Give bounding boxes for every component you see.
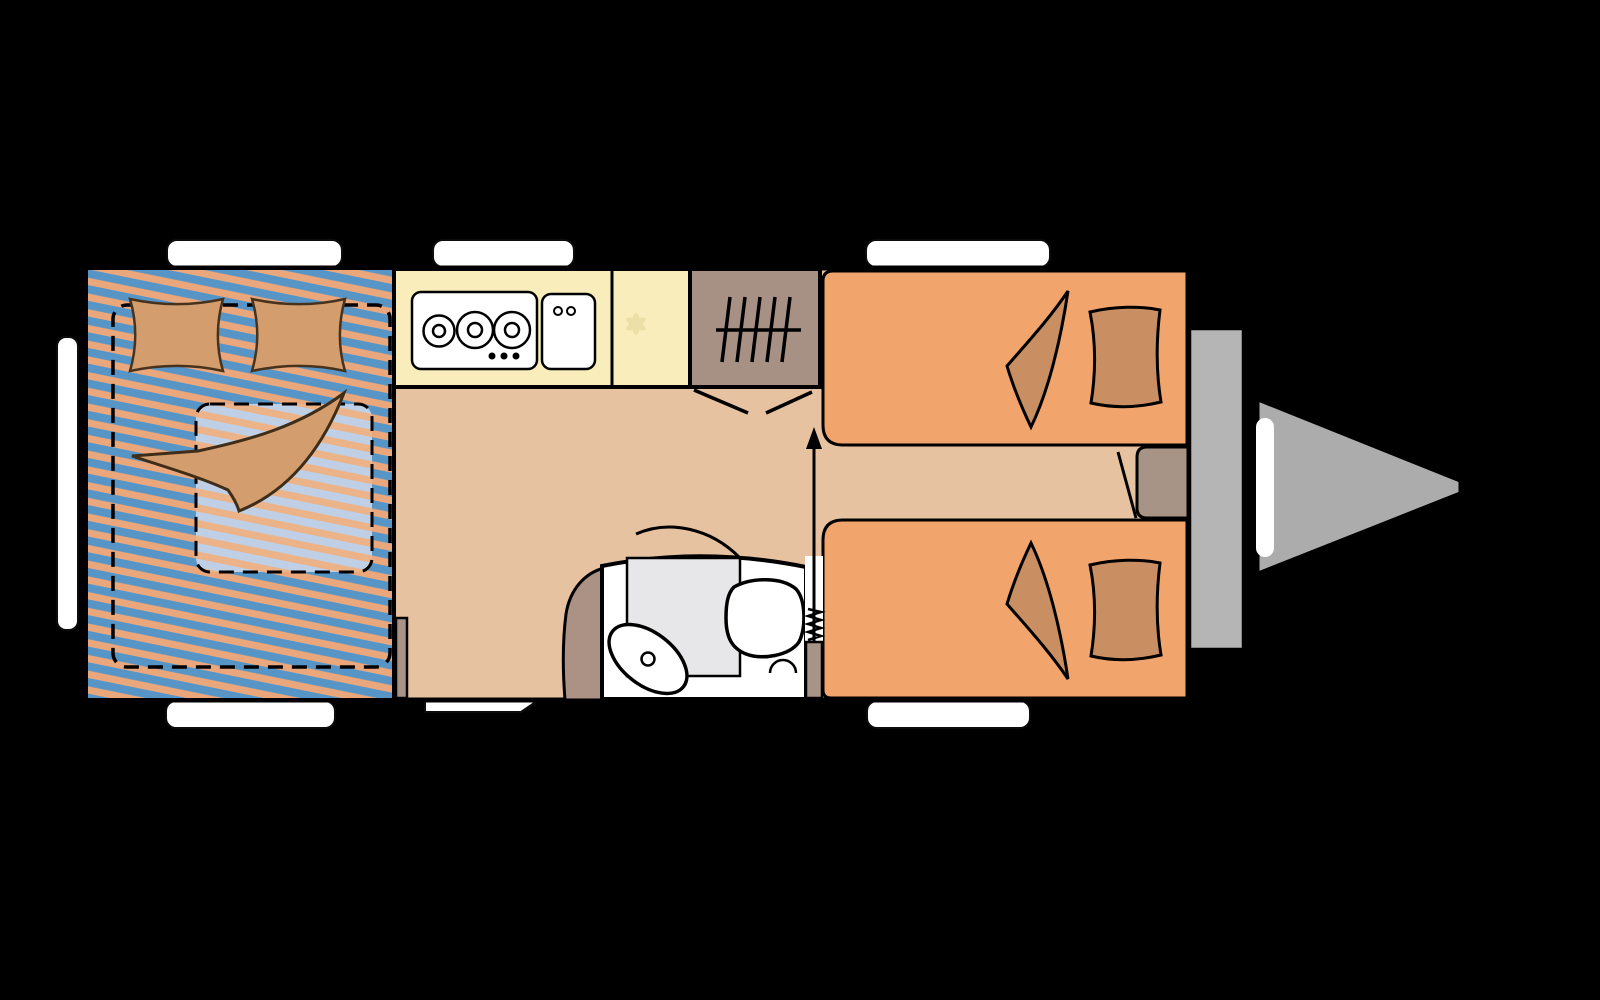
kitchen-sink bbox=[542, 294, 595, 369]
sink-tap-hole-1 bbox=[554, 307, 562, 315]
hob-knob-1 bbox=[489, 353, 496, 360]
side-table bbox=[1137, 447, 1188, 518]
caravan-floorplan bbox=[0, 0, 1600, 1000]
bed-step bbox=[396, 618, 407, 698]
window-bottom-1 bbox=[166, 701, 335, 728]
window-bottom-2 bbox=[867, 701, 1030, 728]
sink-tap-hole-2 bbox=[567, 307, 575, 315]
seat-cushion-top-square bbox=[1090, 307, 1161, 406]
window-top-1 bbox=[167, 240, 342, 267]
hob-knob-3 bbox=[513, 353, 520, 360]
rear-bumper bbox=[1190, 329, 1243, 649]
drawbar-hitch bbox=[1258, 400, 1460, 573]
entrance-door-leaf bbox=[806, 642, 822, 698]
hob-knob-2 bbox=[501, 353, 508, 360]
drawbar-mount bbox=[1243, 398, 1258, 575]
washbasin-drain bbox=[642, 653, 655, 666]
bed-pillow-left bbox=[130, 299, 223, 371]
seat-cushion-bottom-square bbox=[1090, 560, 1161, 659]
window-top-2 bbox=[433, 240, 574, 267]
drawbar-pad bbox=[1256, 418, 1274, 557]
bed-pillow-right bbox=[252, 299, 345, 371]
window-top-3 bbox=[866, 240, 1050, 267]
floorplan-svg bbox=[0, 0, 1600, 1000]
window-left bbox=[57, 337, 78, 630]
toilet bbox=[726, 580, 804, 657]
